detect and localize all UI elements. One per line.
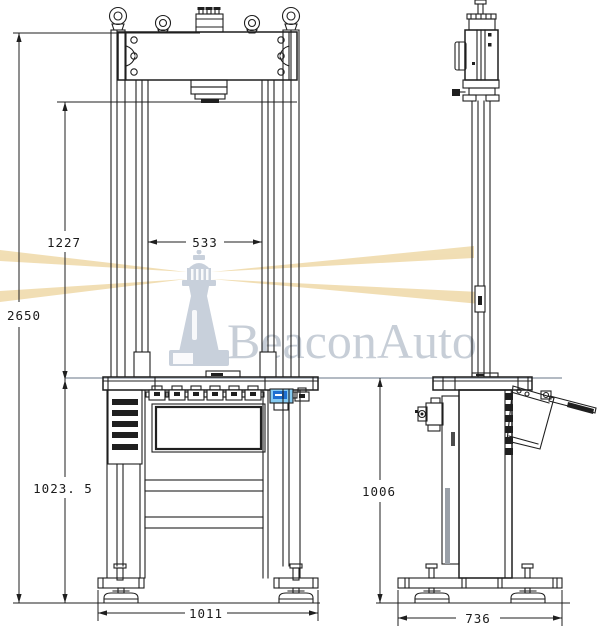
top-crossbeam: [118, 32, 297, 80]
lighthouse-icon: [169, 250, 229, 367]
side-base-feet: [398, 564, 562, 603]
dim-table-to-ground-side: 1006: [362, 484, 396, 499]
drawer-handle[interactable]: [112, 444, 138, 450]
valve-icon: [242, 386, 264, 400]
top-cylinder-block: [196, 7, 223, 32]
side-top-assembly: [452, 0, 499, 101]
dim-ram-to-table: 1227: [47, 235, 81, 250]
drawer-handle[interactable]: [112, 432, 138, 438]
cabinet-opening: [152, 404, 265, 452]
eyebolt-icon: [110, 8, 300, 34]
valve-icon: [146, 386, 168, 400]
light-beams: [0, 246, 480, 304]
dim-overall-height: 2650: [7, 308, 41, 323]
front-legs: [107, 390, 300, 578]
dim-base-depth: 736: [465, 611, 491, 626]
control-panel-lever: [507, 386, 596, 449]
watermark: BeaconAuto: [0, 246, 480, 369]
side-hand-valve: [415, 398, 443, 431]
dim-base-width: 1011: [189, 606, 223, 621]
ram-piston: [191, 80, 227, 103]
drawer-handle[interactable]: [112, 410, 138, 416]
dim-table-to-ground-front: 1023. 5: [33, 481, 93, 496]
drawer-unit: [108, 390, 142, 464]
front-feet: [98, 564, 318, 603]
side-cabinet: [442, 390, 513, 578]
drawer-handle[interactable]: [112, 399, 138, 405]
side-view: [398, 0, 596, 603]
drawer-handle[interactable]: [112, 421, 138, 427]
dim-column-clear-width: 533: [192, 235, 218, 250]
drawing-canvas: BeaconAuto: [0, 0, 606, 631]
